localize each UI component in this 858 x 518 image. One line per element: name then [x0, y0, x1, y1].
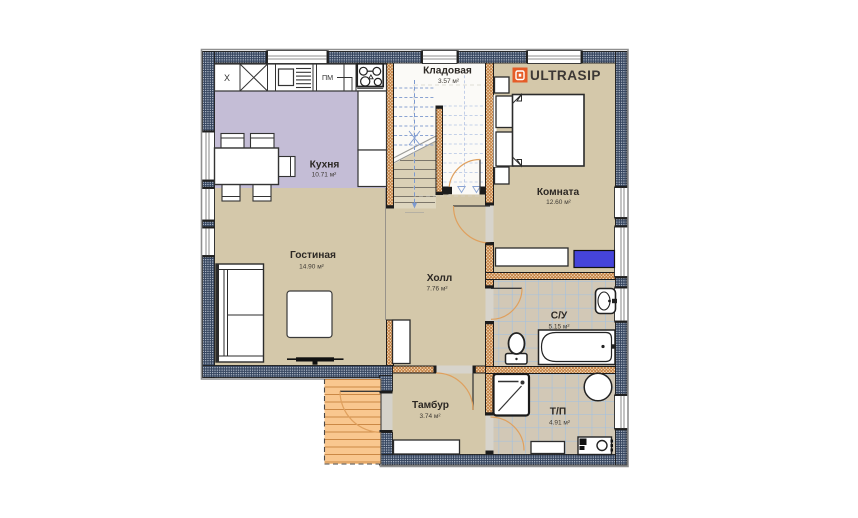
svg-text:Кладовая: Кладовая	[423, 66, 472, 77]
svg-text:ULTRASIP: ULTRASIP	[530, 68, 601, 83]
svg-text:Гостиная: Гостиная	[290, 250, 336, 261]
svg-text:Т/П: Т/П	[550, 407, 566, 418]
svg-text:Кухня: Кухня	[310, 160, 340, 171]
svg-text:3.57 м²: 3.57 м²	[438, 78, 460, 85]
svg-text:14.90 м²: 14.90 м²	[299, 264, 325, 271]
svg-text:7.76 м²: 7.76 м²	[426, 286, 448, 293]
svg-text:ПМ: ПМ	[322, 73, 333, 82]
svg-text:X: X	[224, 73, 230, 83]
svg-text:3.74 м²: 3.74 м²	[419, 413, 441, 420]
svg-text:5.15 м²: 5.15 м²	[548, 324, 570, 331]
svg-text:Комната: Комната	[537, 187, 580, 198]
svg-text:Холл: Холл	[427, 273, 453, 284]
svg-text:С/У: С/У	[551, 311, 568, 322]
svg-text:10.71 м²: 10.71 м²	[312, 172, 338, 179]
svg-text:Тамбур: Тамбур	[412, 399, 449, 411]
svg-text:4.91 м²: 4.91 м²	[549, 420, 571, 427]
svg-text:12.60 м²: 12.60 м²	[546, 199, 572, 206]
